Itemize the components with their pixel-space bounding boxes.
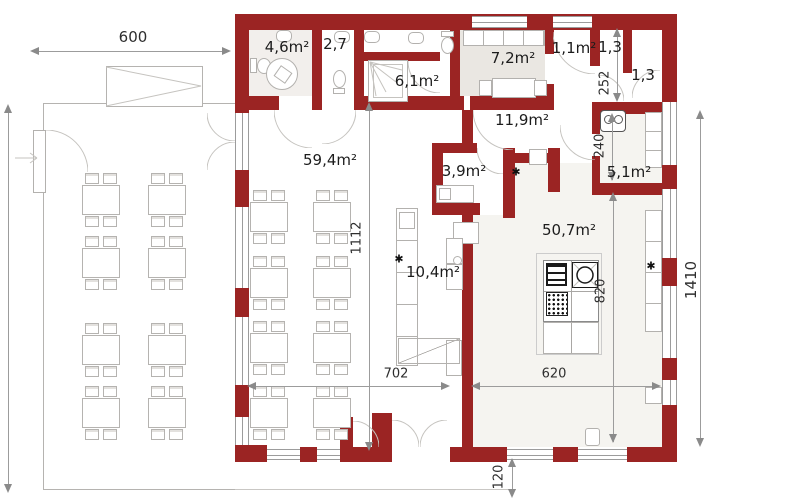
decor xyxy=(242,417,243,445)
decor xyxy=(242,207,243,288)
toilet-icon xyxy=(441,37,454,54)
dining-table xyxy=(313,333,351,363)
chair xyxy=(316,256,330,267)
room-label-wc-accessible: 4,6m² xyxy=(265,38,309,56)
chair xyxy=(271,364,285,375)
decor xyxy=(670,380,671,405)
window xyxy=(235,207,249,288)
dim-arrow xyxy=(441,382,450,390)
wall xyxy=(235,170,249,207)
chair xyxy=(271,321,285,332)
dining-table xyxy=(250,268,288,298)
dim-arrow xyxy=(609,192,617,201)
chair xyxy=(334,233,348,244)
island-base xyxy=(543,322,599,354)
hob-icon xyxy=(546,292,568,316)
decor xyxy=(15,153,37,163)
window xyxy=(235,417,249,445)
decor xyxy=(507,455,553,456)
door-arc xyxy=(207,113,235,141)
dim-arrow xyxy=(613,28,621,37)
room-label-kitchen: 50,7m² xyxy=(542,221,596,239)
floor-unit xyxy=(585,428,600,446)
decor xyxy=(670,189,671,258)
chair xyxy=(334,364,348,375)
chair xyxy=(253,190,267,201)
chair xyxy=(271,429,285,440)
decor xyxy=(207,142,235,170)
door-arc xyxy=(322,110,356,144)
decor xyxy=(670,102,671,165)
decor xyxy=(317,455,340,456)
chair xyxy=(316,364,330,375)
chair xyxy=(271,299,285,310)
toilet-icon xyxy=(333,70,346,88)
wall xyxy=(249,96,279,110)
sink-unit xyxy=(439,188,451,200)
decor xyxy=(274,110,312,148)
dim-label-overall-width: 600 xyxy=(119,28,148,46)
room-label-office: 7,2m² xyxy=(491,49,535,67)
utility-marker: ✱ xyxy=(394,253,403,266)
wall xyxy=(553,447,578,462)
wall xyxy=(312,30,322,110)
chair xyxy=(316,233,330,244)
chair xyxy=(334,299,348,310)
wall-niche xyxy=(529,149,547,165)
wall xyxy=(662,405,677,462)
sink-icon xyxy=(408,32,424,44)
room-label-dining-room: 59,4m² xyxy=(303,151,357,169)
window xyxy=(317,449,340,460)
chair xyxy=(253,299,267,310)
dim-line xyxy=(476,386,659,387)
island-divider xyxy=(571,323,572,353)
chair xyxy=(316,429,330,440)
chair xyxy=(534,80,547,96)
dining-table xyxy=(250,398,288,428)
door-arc xyxy=(274,110,312,148)
floor-plan: 600 1410 1112 702 620 120 252 240 820 4,… xyxy=(0,0,805,499)
chair xyxy=(253,256,267,267)
door-arc xyxy=(560,125,595,160)
wall xyxy=(548,148,560,192)
decor xyxy=(392,420,419,447)
room-label-wc-small-right: 1,3 xyxy=(631,66,655,84)
window xyxy=(662,380,677,405)
wall xyxy=(662,14,677,102)
toilet-icon xyxy=(250,58,257,73)
wall xyxy=(432,203,480,215)
desk xyxy=(492,78,536,98)
dim-arrow xyxy=(4,104,12,113)
chair xyxy=(316,190,330,201)
window xyxy=(235,113,249,170)
decor xyxy=(472,22,527,23)
ramp-icon xyxy=(106,66,203,107)
wall xyxy=(662,165,677,189)
decor xyxy=(46,130,88,172)
wall xyxy=(235,288,249,317)
decor xyxy=(242,317,243,385)
dim-arrow xyxy=(30,47,39,55)
dim-line xyxy=(369,109,370,445)
wall xyxy=(662,358,677,380)
room-label-wc-small-left: 1,3 xyxy=(598,38,622,56)
counter xyxy=(645,112,662,168)
entry-arrow-icon xyxy=(15,150,41,166)
chair xyxy=(271,256,285,267)
room-label-prep-room: 3,9m² xyxy=(442,162,486,180)
decor xyxy=(207,113,235,141)
bar-box xyxy=(399,212,415,229)
wall xyxy=(235,445,267,462)
dishwasher xyxy=(398,338,460,364)
wall xyxy=(503,148,515,218)
wall xyxy=(340,417,353,462)
dim-line xyxy=(252,386,448,387)
decor xyxy=(670,286,671,358)
chair xyxy=(334,321,348,332)
chair xyxy=(253,233,267,244)
door-arc xyxy=(46,130,88,172)
dim-label-bottom-right: 620 xyxy=(542,367,567,382)
wall xyxy=(470,96,553,110)
window xyxy=(235,317,249,385)
sink-icon xyxy=(364,31,380,43)
room-label-hallway: 11,9m² xyxy=(495,111,549,129)
door-arc xyxy=(420,420,447,447)
decor xyxy=(420,420,447,447)
decor xyxy=(553,22,592,23)
dim-arrow xyxy=(365,102,373,111)
decor xyxy=(107,67,203,107)
grill-icon xyxy=(546,263,567,286)
chair xyxy=(334,190,348,201)
wall xyxy=(462,110,473,143)
chair xyxy=(316,386,330,397)
decor xyxy=(242,113,243,170)
dim-label-pantry-depth: 240 xyxy=(593,134,608,159)
dim-arrow xyxy=(696,110,704,119)
wall xyxy=(450,447,507,462)
dim-label-wc-depth: 252 xyxy=(598,71,613,96)
window xyxy=(553,16,592,28)
chair xyxy=(334,386,348,397)
dim-label-overall-height: 1410 xyxy=(682,261,700,299)
dim-arrow xyxy=(4,484,12,493)
office-counter xyxy=(463,30,545,46)
dim-arrow xyxy=(365,442,373,451)
door-arc xyxy=(392,420,419,447)
wall xyxy=(662,258,677,286)
dim-arrow xyxy=(508,458,516,467)
dim-label-dining-depth: 1112 xyxy=(350,221,365,254)
chair xyxy=(271,233,285,244)
chair xyxy=(479,80,492,96)
wall xyxy=(300,447,317,462)
room-label-bar: 10,4m² xyxy=(406,263,460,281)
chair xyxy=(316,321,330,332)
dim-arrow xyxy=(696,438,704,447)
dim-label-entry-offset: 120 xyxy=(492,465,507,490)
dim-arrow xyxy=(613,93,621,102)
room-label-shower-room: 6,1m² xyxy=(395,72,439,90)
decor xyxy=(322,110,356,144)
toilet-icon xyxy=(333,88,345,94)
chair xyxy=(271,190,285,201)
dim-label-kitchen-depth: 820 xyxy=(594,279,609,304)
dining-table xyxy=(313,202,351,232)
window xyxy=(662,189,677,258)
dim-line xyxy=(613,198,614,442)
room-label-pantry: 5,1m² xyxy=(607,163,651,181)
chair xyxy=(253,364,267,375)
pavement-line xyxy=(235,489,516,490)
window xyxy=(578,449,627,460)
dim-arrow xyxy=(508,489,516,498)
decor xyxy=(560,125,595,160)
wall xyxy=(462,215,473,447)
dining-table xyxy=(313,268,351,298)
dim-arrow xyxy=(652,382,661,390)
window xyxy=(662,286,677,358)
dining-table xyxy=(250,333,288,363)
door-arc xyxy=(207,142,235,170)
chair xyxy=(271,386,285,397)
room-label-wc: 2,7 xyxy=(323,35,347,53)
chair xyxy=(253,321,267,332)
dim-arrow xyxy=(608,113,616,122)
chair xyxy=(253,429,267,440)
wall xyxy=(432,143,477,153)
dim-arrow xyxy=(471,382,480,390)
chair xyxy=(316,299,330,310)
window xyxy=(472,16,527,28)
dim-line xyxy=(8,112,9,487)
window xyxy=(267,449,300,460)
decor xyxy=(578,455,627,456)
dim-line xyxy=(700,117,701,441)
dining-table xyxy=(250,202,288,232)
wall xyxy=(235,14,249,113)
room-label-vestibule: 1,1m² xyxy=(552,39,596,57)
window xyxy=(662,102,677,165)
dim-line xyxy=(38,51,229,52)
dim-label-bottom-left: 702 xyxy=(384,367,409,382)
dim-arrow xyxy=(609,434,617,443)
dim-arrow xyxy=(247,382,256,390)
utility-marker: ✱ xyxy=(646,260,655,273)
wall xyxy=(235,14,677,30)
chair xyxy=(334,256,348,267)
wall xyxy=(627,447,663,462)
dim-arrow xyxy=(222,47,231,55)
decor xyxy=(267,455,300,456)
utility-marker: ✱ xyxy=(511,166,520,179)
